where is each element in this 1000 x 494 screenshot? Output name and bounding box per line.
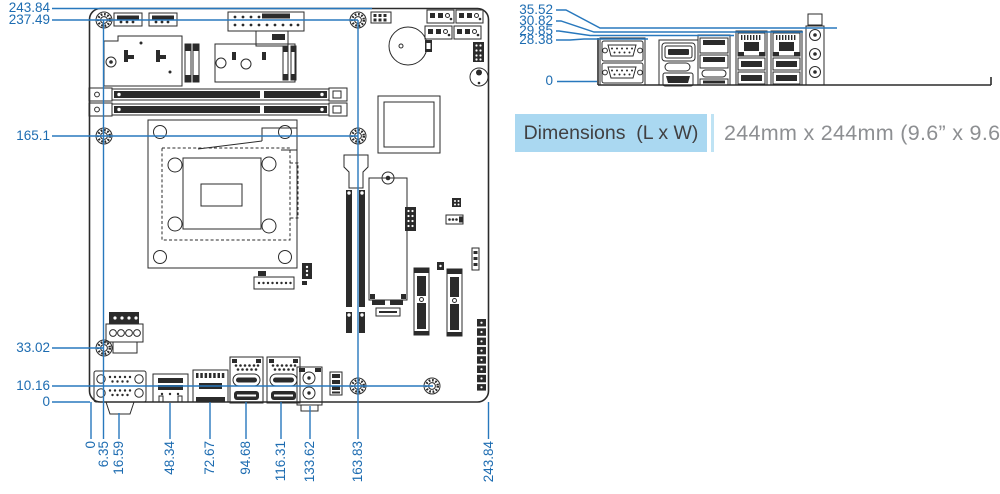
dim-label-rear: 0 (495, 74, 553, 87)
dimm-slot-2 (89, 103, 347, 116)
power-connectors (425, 10, 483, 39)
dim-label-bottom: 133.62 (303, 441, 317, 482)
dimensions-label: Dimensions (L x W) (524, 122, 699, 145)
dimensions-label-box: Dimensions (L x W) (515, 114, 707, 152)
top-pin-header (228, 12, 304, 46)
pin-header-column (405, 207, 416, 231)
chipset-heatsink (378, 96, 440, 153)
jumper-header (371, 12, 391, 23)
dim-label-bottom: 94.68 (239, 441, 253, 475)
audio-jack-stack (297, 367, 322, 411)
dim-label-left: 165.1 (0, 129, 50, 142)
dim-label-bottom: 163.83 (351, 441, 365, 482)
motherboard-dimension-drawing: 243.84 237.49 165.1 33.02 10.16 0 0 6.35… (0, 0, 1000, 494)
dim-label-left: 10.16 (0, 379, 50, 392)
dim-label-left: 33.02 (0, 341, 50, 354)
dim-label-left: 0 (0, 395, 50, 408)
small-headers-right (437, 198, 479, 270)
rear-io-panel (598, 14, 991, 86)
rear-com-ports (600, 38, 645, 85)
dim-label-bottom: 243.84 (482, 441, 496, 482)
com-port-stack (94, 371, 146, 414)
dim-label-bottom: 6.35 (97, 441, 111, 467)
rear-lan-usb-stack-1 (736, 31, 767, 85)
lan-usb-stack-1 (230, 357, 263, 403)
rear-lan-usb-stack-2 (771, 31, 802, 85)
front-panel-header-strip (477, 319, 486, 391)
dim-label-bottom: 16.59 (112, 441, 126, 475)
dim-label-rear: 28.38 (495, 33, 553, 46)
m2-module-a (104, 36, 199, 86)
cpu-die (201, 184, 242, 206)
pcie-x16-slot (344, 155, 368, 333)
bottom-pin-header (330, 372, 342, 395)
dimensions-separator (711, 114, 714, 152)
displayport-connector (153, 374, 188, 402)
pcie-x1-slot-2 (447, 269, 462, 336)
dim-label-bottom: 116.31 (274, 441, 288, 481)
rear-usb-stack (698, 35, 730, 85)
buzzer (470, 68, 488, 86)
cmos-battery (389, 27, 432, 65)
rear-audio-jacks (806, 14, 824, 85)
dim-label-bottom: 48.34 (163, 441, 177, 475)
m2-slot-vertical (369, 172, 407, 316)
dimm-slots (89, 88, 347, 116)
cpu-socket (148, 120, 312, 289)
dimm-slot-1 (89, 88, 347, 101)
board-outline (90, 9, 489, 403)
dim-label-left: 237.49 (0, 13, 50, 26)
pcie-x1-slot-1 (414, 268, 429, 335)
dim-label-bottom: 72.67 (203, 441, 217, 475)
lan-usb-stack-2 (267, 357, 300, 403)
small-header (473, 42, 484, 62)
rear-dp-hdmi (659, 40, 698, 86)
motherboard-top-view (89, 9, 489, 415)
dimensions-value: 244mm x 244mm (9.6” x 9.6”) (724, 114, 1000, 152)
